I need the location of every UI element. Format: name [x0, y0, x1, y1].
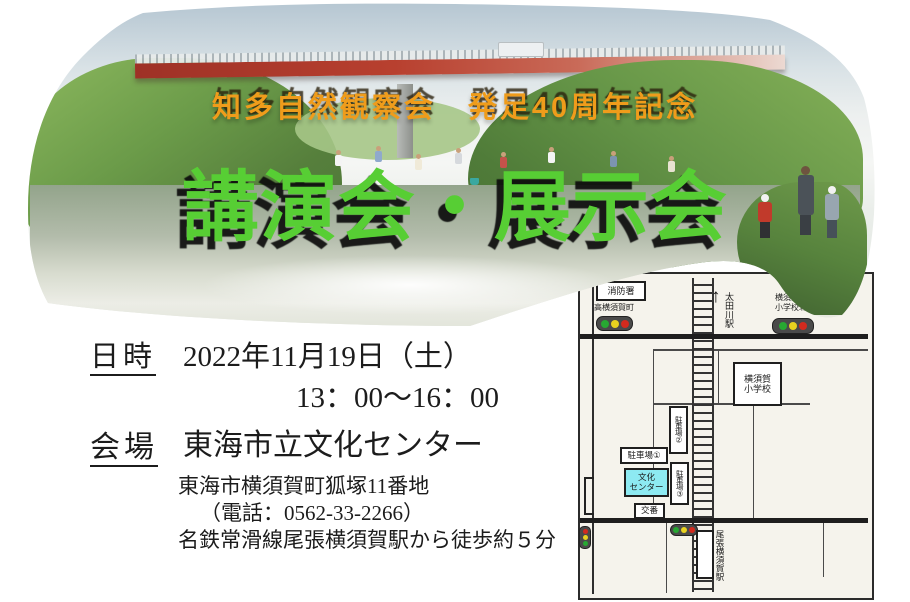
- road-thin-7: [653, 403, 810, 405]
- venue-address: 東海市横須賀町狐塚11番地: [178, 470, 429, 500]
- person-figure: [455, 148, 462, 164]
- parking-box-3: 駐車場③: [670, 462, 689, 505]
- station-platform: [696, 530, 714, 579]
- road-thin-6: [653, 349, 868, 351]
- event-title: 講演会・展示会: [0, 164, 910, 253]
- venue-access: 名鉄常滑線尾張横須賀駅から徒歩約５分: [178, 524, 556, 554]
- main-road-south: [580, 518, 868, 523]
- station-south-label: 尾張横須賀駅: [714, 530, 726, 594]
- road-thin-3: [753, 403, 754, 523]
- time-value: 13：00～16：00: [296, 374, 499, 416]
- vehicle-on-bridge: [498, 42, 544, 57]
- flyer-page: 知多自然観察会 発足40周年記念 講演会・展示会 日時 2022年11月19日（…: [0, 0, 910, 602]
- parking-box-2: 駐車場②: [669, 406, 688, 454]
- datetime-value: 2022年11月19日（土）: [183, 333, 472, 375]
- intersection-west-label: 高横須賀町: [594, 303, 634, 313]
- station-north-label: 太田川駅: [723, 292, 736, 340]
- datetime-label: 日時: [90, 333, 156, 375]
- road-thin-5: [666, 523, 667, 593]
- road-stub: [584, 477, 594, 515]
- person-figure: [375, 146, 382, 162]
- school-box: 横須賀小学校: [733, 362, 782, 406]
- person-figure: [548, 147, 555, 163]
- traffic-light-icon: [670, 524, 698, 536]
- fire-station-box: 消防署: [596, 281, 646, 301]
- police-box: 交番: [634, 503, 665, 519]
- road-thin-2: [718, 349, 719, 403]
- road-thin-4: [823, 523, 824, 577]
- traffic-light-icon: [579, 526, 591, 549]
- water-glare: [200, 255, 620, 315]
- road-west: [592, 274, 594, 594]
- venue-phone: （電話：0562-33-2266）: [200, 497, 424, 527]
- north-arrow-icon: ↑: [711, 287, 721, 306]
- traffic-light-icon: [772, 318, 814, 334]
- traffic-light-icon: [596, 316, 633, 331]
- venue-name: 東海市立文化センター: [183, 420, 483, 464]
- anniversary-subtitle: 知多自然観察会 発足40周年記念: [0, 84, 910, 126]
- parking-box-1: 駐車場①: [620, 447, 668, 464]
- access-map: 消防署 高横須賀町 ↑ 太田川駅 横須賀小学校北 横須賀小学校 駐車場② 駐車場…: [578, 272, 874, 600]
- culture-center-box: 文化センター: [624, 468, 669, 497]
- venue-label: 会場: [90, 422, 158, 466]
